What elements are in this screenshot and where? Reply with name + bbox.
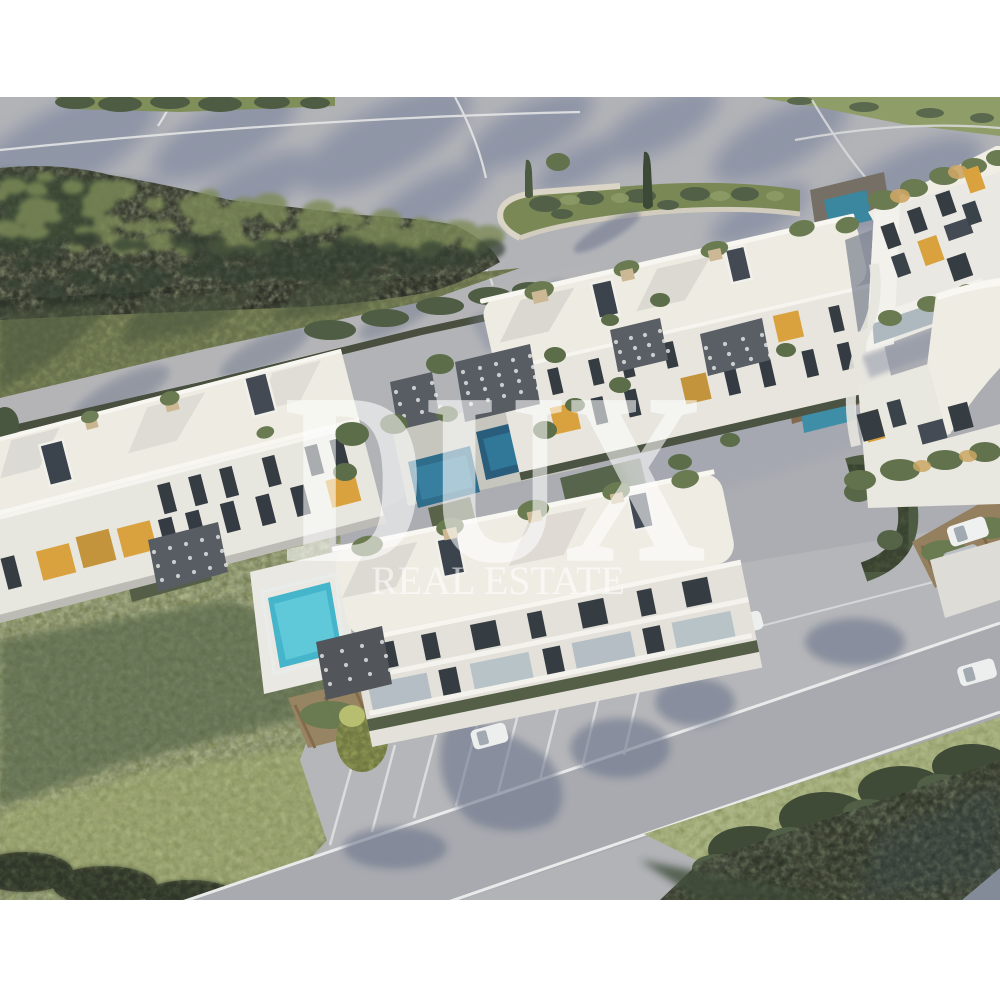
svg-text:REAL ESTATE: REAL ESTATE: [371, 558, 625, 603]
